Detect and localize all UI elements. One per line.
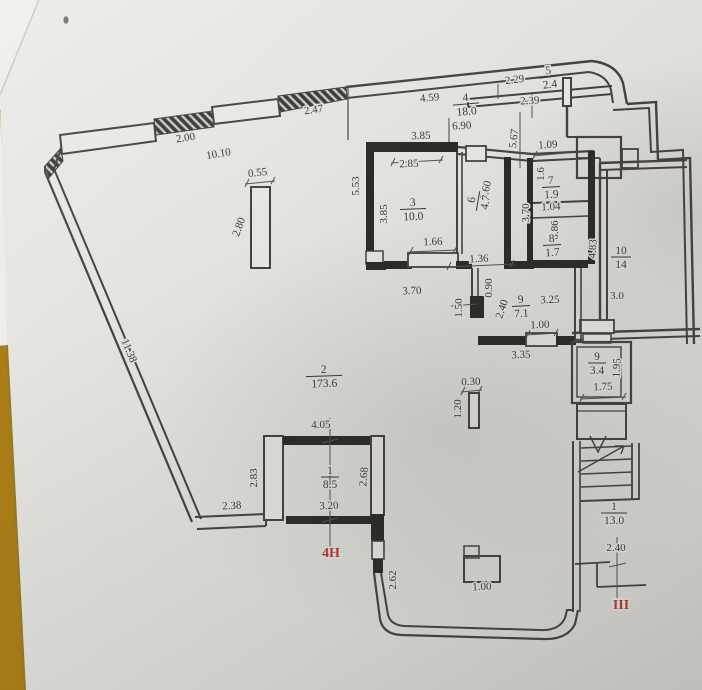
dimension-label: 3.35 — [511, 349, 531, 362]
room-number: 1 — [327, 465, 333, 477]
staple — [63, 16, 68, 24]
room-number: 9 — [518, 294, 525, 306]
dimension-label: 0.30 — [461, 376, 481, 389]
red-annotation: III — [613, 598, 629, 613]
room-number: 3 — [410, 197, 416, 209]
dimension-label: 1.50 — [453, 298, 465, 318]
room-area: 13.0 — [604, 515, 624, 527]
room-area: 3.4 — [590, 365, 605, 377]
room-area: 18.0 — [456, 105, 477, 119]
dimension-label: 3.25 — [540, 294, 560, 307]
dimension-label: 3.85 — [378, 204, 390, 224]
room-number: 10 — [615, 245, 627, 257]
dimension-label: 2.62 — [387, 570, 399, 589]
room-area: 7.1 — [514, 308, 529, 321]
dimension-label: 4.59 — [419, 91, 440, 105]
dimension-label: 3.70 — [402, 285, 422, 298]
dimension-label: 3.20 — [319, 500, 339, 513]
dimension-label: 2.29 — [504, 73, 525, 87]
dimension-label: 1.6 — [535, 167, 547, 181]
room-area: 1.7 — [545, 247, 560, 260]
room-number: 7 — [548, 175, 555, 187]
room-area: 8.5 — [323, 479, 338, 491]
floor-plan-drawing: 2.0010.102.470.552.8011.385.533.852.854.… — [0, 0, 702, 690]
red-annotation: 4Н — [322, 546, 340, 561]
dimension-label: 1.04 — [541, 201, 561, 214]
dimension-label: 1.20 — [452, 399, 464, 419]
dimension-label: 2.38 — [222, 499, 242, 512]
dimension-label: 1.00 — [472, 581, 492, 594]
room-area: 1.9 — [544, 189, 559, 202]
room-number: 2 — [321, 364, 327, 376]
room-number: 9 — [594, 351, 600, 363]
dimension-label: 2.39 — [520, 94, 540, 107]
dimension-label: 2.83 — [248, 468, 260, 488]
room-area: 10.0 — [403, 211, 424, 224]
dimension-label: 5.67 — [507, 128, 521, 149]
dimension-label: 2.40 — [606, 542, 626, 554]
room-number: 8 — [549, 233, 556, 245]
dimension-label: 3.85 — [411, 130, 431, 143]
dimension-label: 1.66 — [423, 236, 443, 249]
dimension-label: 3.70 — [520, 203, 532, 223]
room-area: 2.4 — [542, 78, 558, 92]
dimension-label: 3.0 — [610, 290, 624, 302]
dimension-label: 0.90 — [483, 278, 495, 298]
dimension-label: 4.83 — [587, 238, 600, 258]
dimension-label: 6.90 — [452, 119, 473, 132]
room-area: 4.7 — [479, 194, 493, 210]
dimension-label: 1.00 — [530, 319, 550, 332]
dimension-label: 4.05 — [311, 419, 331, 432]
dimension-label: 1.36 — [469, 253, 489, 266]
dimension-label: 1.75 — [593, 381, 613, 394]
dimension-label: 5.53 — [350, 176, 362, 196]
room-number: 1 — [611, 501, 617, 513]
dimension-label: 2.68 — [357, 466, 371, 487]
dimension-label: 1.09 — [538, 138, 558, 151]
photo-scene: 2.0010.102.470.552.8011.385.533.852.854.… — [0, 0, 702, 690]
dimension-label: 0.55 — [247, 166, 268, 180]
dimension-label: 1.95 — [611, 357, 624, 377]
room-area: 173.6 — [311, 378, 338, 391]
room-area: 14 — [615, 259, 627, 271]
dimension-label: 2.85 — [399, 158, 419, 171]
